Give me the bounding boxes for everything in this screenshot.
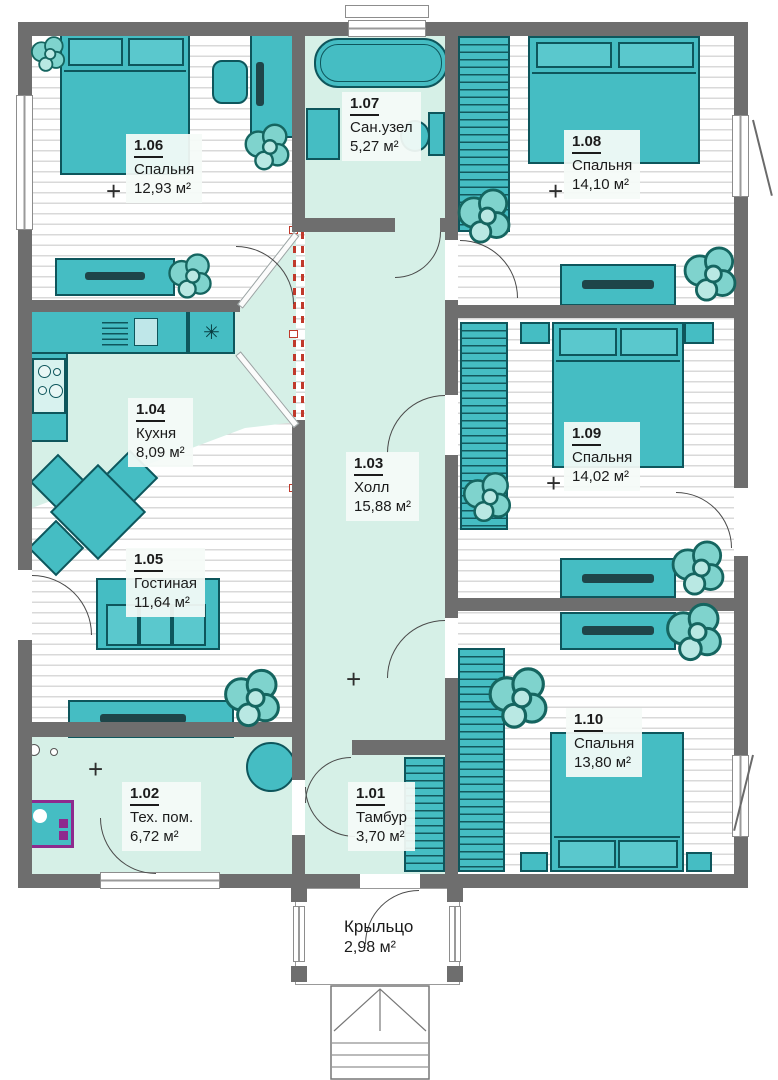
tv-icon	[582, 280, 654, 289]
burner-icon	[38, 365, 51, 378]
door-opening	[360, 874, 420, 888]
wall	[292, 218, 395, 232]
blanket-line	[554, 836, 680, 838]
nightstand-icon	[520, 322, 550, 344]
room-area: 14,02 м²	[572, 467, 632, 487]
bathtub-icon	[314, 38, 448, 88]
room-label-1-07: 1.07 Сан.узел 5,27 м²	[342, 92, 421, 161]
stove-icon	[32, 358, 66, 414]
window	[348, 20, 426, 37]
door-opening	[305, 740, 352, 755]
wall	[445, 318, 458, 395]
equipment-port-icon	[59, 831, 68, 840]
pillow-icon	[618, 42, 694, 68]
room-name: Спальня	[574, 734, 634, 754]
room-label-1-04: 1.04 Кухня 8,09 м²	[128, 398, 193, 467]
porch-post	[291, 886, 307, 902]
room-number: 1.05	[134, 550, 163, 572]
wall	[445, 300, 458, 318]
burner-icon	[53, 368, 61, 376]
toilet-tank-icon	[428, 112, 445, 156]
room-area: 5,27 м²	[350, 137, 413, 157]
room-area: 6,72 м²	[130, 827, 193, 847]
water-tank-icon	[246, 742, 296, 792]
equipment-port-icon	[59, 819, 68, 828]
tv-icon	[582, 574, 654, 583]
room-area: 11,64 м²	[134, 593, 197, 613]
room-area: 8,09 м²	[136, 443, 185, 463]
plant-icon	[162, 248, 218, 304]
room-name: Спальня	[572, 156, 632, 176]
room-name: Спальня	[572, 448, 632, 468]
porch-post	[447, 886, 463, 902]
center-mark-icon: +	[106, 178, 121, 204]
tv-icon	[582, 626, 654, 635]
room-number: 1.07	[350, 94, 379, 116]
boiler-equipment-icon	[26, 800, 74, 848]
fixture-icon	[50, 748, 58, 756]
nightstand-icon	[520, 852, 548, 872]
blanket-line	[532, 72, 696, 74]
room-area: 14,10 м²	[572, 175, 632, 195]
room-label-1-10: 1.10 Спальня 13,80 м²	[566, 708, 642, 777]
room-name: Тамбур	[356, 808, 407, 828]
wall	[292, 835, 305, 874]
blanket-line	[64, 70, 186, 72]
red-marker	[289, 330, 298, 338]
monitor-icon	[256, 62, 264, 106]
door-opening	[18, 570, 32, 640]
porch-area: 2,98 м²	[344, 938, 413, 959]
porch-railing	[449, 906, 461, 962]
wall	[292, 420, 305, 740]
plant-icon	[480, 660, 556, 736]
room-name: Кухня	[136, 424, 185, 444]
center-mark-icon: +	[88, 756, 103, 782]
room-name: Холл	[354, 478, 411, 498]
fridge-icon: ✳	[188, 310, 235, 354]
sink-icon	[134, 318, 158, 346]
room-area: 3,70 м²	[356, 827, 407, 847]
window-sash	[752, 120, 773, 196]
burner-icon	[49, 384, 63, 398]
center-mark-icon: +	[548, 178, 563, 204]
center-mark-icon: +	[546, 470, 561, 496]
pillow-icon	[558, 840, 616, 868]
pillow-icon	[128, 38, 184, 66]
pillow-icon	[68, 38, 123, 66]
room-number: 1.06	[134, 136, 163, 158]
room-name: Тех. пом.	[130, 808, 193, 828]
window-sill	[345, 5, 429, 18]
room-number: 1.02	[130, 784, 159, 806]
pillow-icon	[618, 840, 678, 868]
room-number: 1.04	[136, 400, 165, 422]
window	[100, 872, 220, 889]
room-area: 12,93 м²	[134, 179, 194, 199]
nightstand-icon	[684, 322, 714, 344]
floor-plan: ✳	[0, 0, 778, 1080]
room-name: Спальня	[134, 160, 194, 180]
plant-icon	[216, 662, 288, 734]
red-dashed-line	[293, 232, 296, 330]
room-name: Сан.узел	[350, 118, 413, 138]
door-opening	[734, 488, 748, 556]
pillow-icon	[559, 328, 617, 356]
snowflake-icon: ✳	[190, 312, 233, 352]
room-label-1-02: 1.02 Тех. пом. 6,72 м²	[122, 782, 201, 851]
wall	[445, 678, 458, 874]
wall	[292, 755, 305, 780]
plant-icon	[456, 466, 518, 528]
room-label-1-06: 1.06 Спальня 12,93 м²	[126, 134, 202, 203]
window	[16, 95, 33, 230]
plant-icon	[664, 534, 732, 602]
red-dashed-line	[301, 232, 304, 330]
plant-icon	[238, 118, 296, 176]
room-label-1-01: 1.01 Тамбур 3,70 м²	[348, 782, 415, 851]
room-name: Гостиная	[134, 574, 197, 594]
nightstand-icon	[686, 852, 712, 872]
room-number: 1.01	[356, 784, 385, 806]
blanket-line	[556, 360, 680, 362]
washing-machine-icon	[306, 108, 340, 160]
pillow-icon	[620, 328, 678, 356]
wall	[352, 740, 458, 755]
room-number: 1.03	[354, 454, 383, 476]
room-label-1-05: 1.05 Гостиная 11,64 м²	[126, 548, 205, 617]
room-area: 15,88 м²	[354, 497, 411, 517]
room-area: 13,80 м²	[574, 753, 634, 773]
porch-name: Крыльцо	[344, 916, 413, 938]
porch-label: Крыльцо 2,98 м²	[336, 914, 421, 963]
room-number: 1.08	[572, 132, 601, 154]
chair-icon	[212, 60, 248, 104]
room-number: 1.09	[572, 424, 601, 446]
plant-icon	[450, 182, 518, 250]
room-label-1-03: 1.03 Холл 15,88 м²	[346, 452, 419, 521]
pillow-icon	[536, 42, 612, 68]
wall	[292, 740, 305, 755]
porch-post	[291, 966, 307, 982]
room-number: 1.10	[574, 710, 603, 732]
porch-post	[447, 966, 463, 982]
door-opening	[445, 618, 458, 678]
center-mark-icon: +	[346, 666, 361, 692]
plant-icon	[658, 596, 730, 668]
porch-railing	[293, 906, 305, 962]
sink-drainer-icon	[102, 318, 128, 346]
burner-icon	[38, 386, 47, 395]
door-opening	[445, 395, 458, 455]
window	[732, 115, 749, 197]
plant-icon	[26, 32, 70, 76]
tv-icon	[85, 272, 145, 280]
room-label-1-08: 1.08 Спальня 14,10 м²	[564, 130, 640, 199]
porch-steps	[330, 985, 430, 1080]
door-opening	[395, 218, 440, 232]
equipment-dial-icon	[33, 809, 47, 823]
plant-icon	[676, 240, 744, 308]
room-label-1-09: 1.09 Спальня 14,02 м²	[564, 422, 640, 491]
door-opening	[292, 780, 305, 835]
